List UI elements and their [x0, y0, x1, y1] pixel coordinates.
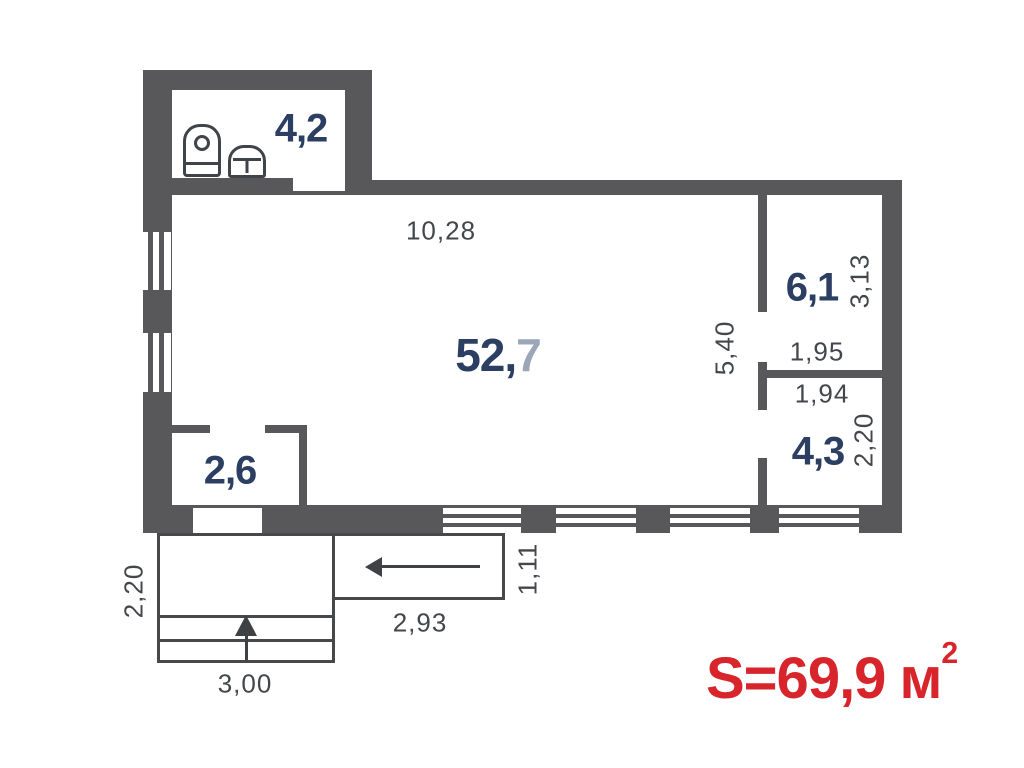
wall-top	[372, 180, 902, 195]
door-storage-bottom	[758, 410, 767, 458]
dim-porch-width: 3,00	[218, 669, 273, 700]
toilet-icon	[183, 124, 221, 177]
room-label-bathroom: 4,2	[275, 107, 328, 152]
wall-partition-middle	[758, 370, 882, 378]
dim-porch-height: 2,20	[119, 564, 150, 619]
room-label-living-whole: 52,	[455, 329, 516, 381]
window-bottom-2	[556, 508, 636, 533]
total-area-unit: м	[899, 646, 941, 711]
dim-living-width: 10,28	[406, 216, 476, 247]
door-closet	[210, 425, 265, 433]
room-label-living: 52,7	[455, 328, 541, 382]
total-area-label: S=69,9м2	[706, 645, 957, 712]
room-label-closet: 2,6	[204, 449, 257, 494]
wall-left	[143, 70, 172, 533]
wall-bathroom-right	[345, 70, 372, 195]
window-bottom-3	[670, 508, 750, 533]
dim-storage-bottom-width: 1,94	[795, 379, 850, 410]
dim-living-height: 5,40	[710, 321, 741, 376]
wall-right	[882, 180, 902, 533]
floor-plan: 4,2 52,7 6,1 4,3 2,6 10,28 5,40 3,13 1,9…	[0, 0, 1024, 768]
wall-closet-right	[299, 425, 307, 505]
dim-walkway-width: 2,93	[393, 608, 448, 639]
wall-bathroom-top	[143, 70, 372, 90]
window-bottom-4	[779, 508, 859, 533]
room-label-storage-top: 6,1	[786, 266, 839, 311]
window-bottom-1	[443, 508, 521, 533]
door-storage-top	[758, 312, 767, 362]
window-left-1	[141, 232, 171, 290]
dim-storage-bottom-height: 2,20	[849, 413, 880, 468]
door-bathroom	[293, 178, 345, 191]
dim-walkway-height: 1,11	[513, 543, 544, 596]
room-label-living-frac: 7	[516, 329, 541, 381]
total-area-exponent: 2	[941, 637, 957, 670]
dim-storage-top-width: 1,95	[790, 337, 845, 368]
sink-icon	[228, 145, 266, 178]
door-exit	[193, 508, 262, 533]
room-label-storage-bottom: 4,3	[792, 430, 845, 475]
total-area-value: S=69,9	[706, 646, 885, 711]
dim-storage-top-height: 3,13	[845, 254, 876, 309]
window-left-2	[141, 333, 171, 392]
